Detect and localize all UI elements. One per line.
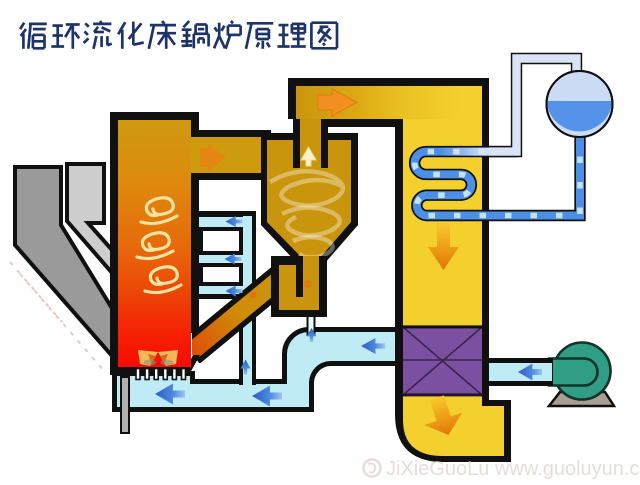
svg-text:JiXieGuoLu www.guoluyun.com: JiXieGuoLu www.guoluyun.com: [386, 458, 640, 480]
